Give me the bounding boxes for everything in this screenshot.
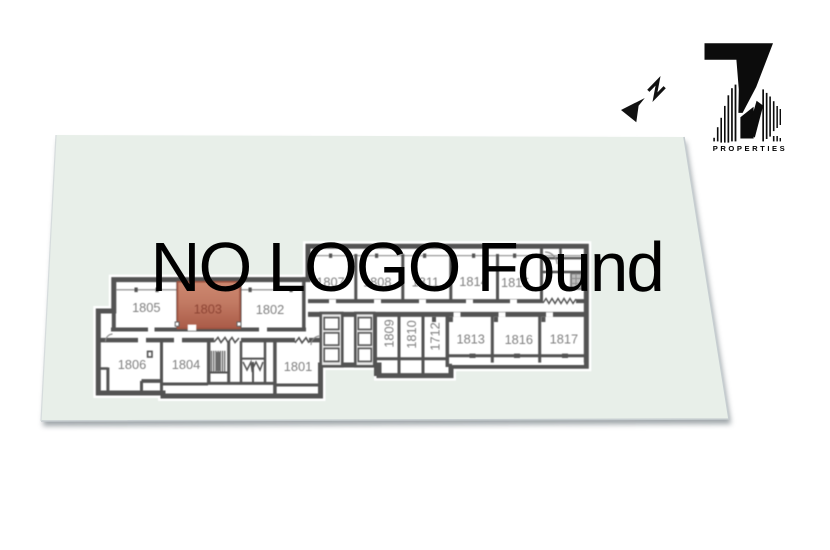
svg-text:1813: 1813 [456, 332, 484, 347]
svg-text:1806: 1806 [118, 357, 146, 372]
svg-text:1816: 1816 [505, 332, 533, 347]
svg-text:PROPERTIES: PROPERTIES [713, 144, 787, 153]
svg-text:1712: 1712 [428, 322, 443, 350]
svg-text:1817: 1817 [550, 332, 578, 347]
svg-text:1810: 1810 [404, 320, 419, 348]
svg-text:1801: 1801 [284, 359, 312, 374]
svg-text:1804: 1804 [172, 357, 200, 372]
svg-text:NO LOGO Found: NO LOGO Found [151, 228, 663, 306]
svg-text:1809: 1809 [381, 319, 396, 347]
